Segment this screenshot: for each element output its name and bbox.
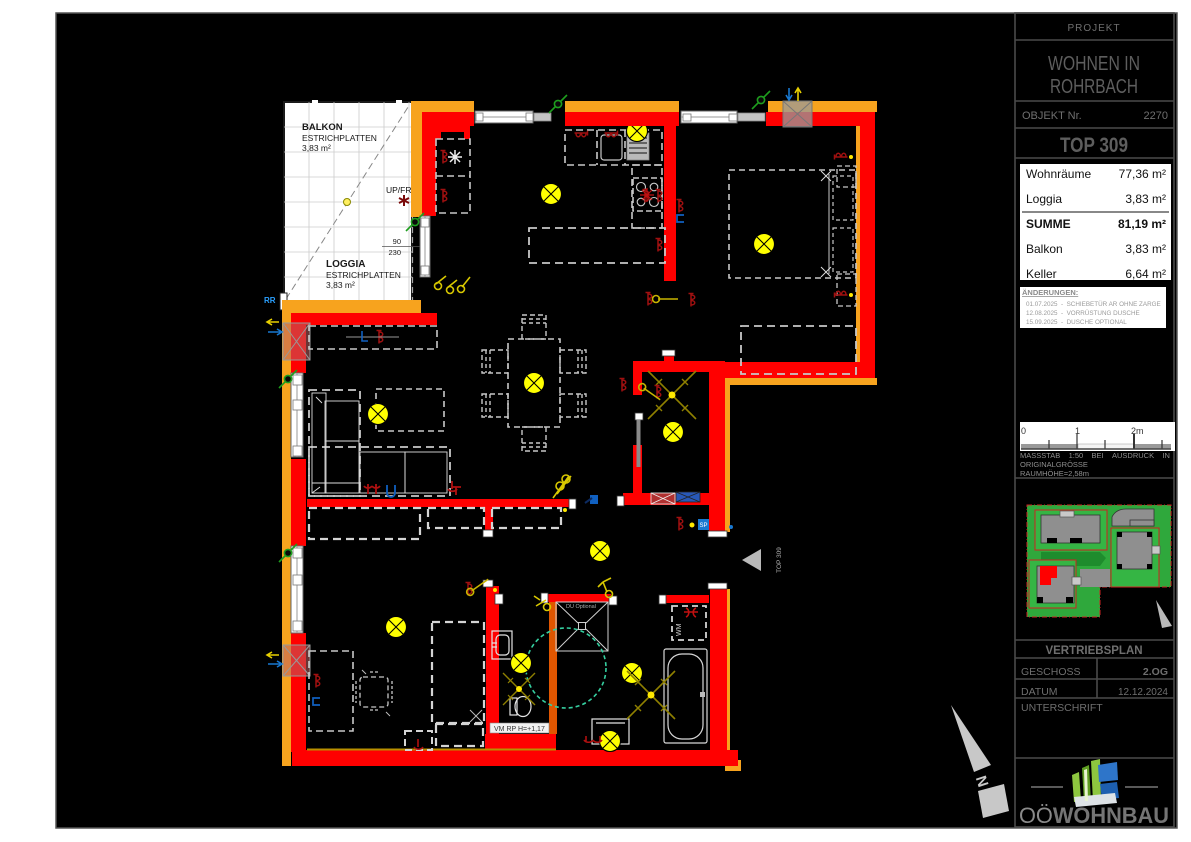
svg-text:12.08.2025 - VORRÜSTUNG DUSC: 12.08.2025 - VORRÜSTUNG DUSCHE: [1026, 309, 1140, 317]
svg-text:ORIGINALGRÖSSE: ORIGINALGRÖSSE: [1020, 460, 1088, 469]
svg-text:BALKON: BALKON: [302, 122, 343, 133]
svg-text:GESCHOSS: GESCHOSS: [1021, 666, 1081, 678]
svg-text:ROHRBACH: ROHRBACH: [1050, 76, 1138, 98]
svg-text:ÄNDERUNGEN:: ÄNDERUNGEN:: [1022, 288, 1078, 297]
svg-text:3,83 m²: 3,83 m²: [302, 143, 331, 153]
svg-text:WM: WM: [676, 623, 683, 636]
svg-text:RAUMHÖHE=2,58m: RAUMHÖHE=2,58m: [1020, 469, 1089, 478]
svg-text:SUMME: SUMME: [1026, 217, 1071, 231]
svg-text:UP/FR: UP/FR: [386, 185, 412, 195]
svg-text:3,83 m²: 3,83 m²: [1125, 192, 1166, 206]
svg-text:15.09.2025 - DUSCHE OPTIONAL: 15.09.2025 - DUSCHE OPTIONAL: [1026, 319, 1127, 326]
svg-text:Balkon: Balkon: [1026, 242, 1063, 256]
svg-text:ESTRICHPLATTEN: ESTRICHPLATTEN: [326, 270, 401, 280]
svg-text:DATUM: DATUM: [1021, 686, 1058, 698]
svg-text:6,64 m²: 6,64 m²: [1125, 267, 1166, 281]
svg-text:VM RP H=+1,17: VM RP H=+1,17: [494, 726, 545, 733]
svg-text:2.OG: 2.OG: [1143, 666, 1168, 678]
svg-text:TOP 309: TOP 309: [776, 547, 783, 573]
svg-text:12.12.2024: 12.12.2024: [1118, 687, 1168, 698]
svg-text:VERTRIEBSPLAN: VERTRIEBSPLAN: [1045, 645, 1142, 657]
svg-text:LOGGIA: LOGGIA: [326, 259, 365, 270]
svg-text:RR: RR: [264, 296, 276, 305]
svg-text:3,83 m²: 3,83 m²: [326, 280, 355, 290]
svg-text:ESTRICHPLATTEN: ESTRICHPLATTEN: [302, 133, 377, 143]
svg-text:Keller: Keller: [1026, 267, 1057, 281]
svg-text:OÖWOHNBAU: OÖWOHNBAU: [1019, 803, 1169, 828]
svg-text:OBJEKT Nr.: OBJEKT Nr.: [1022, 110, 1082, 122]
svg-text:230: 230: [388, 248, 401, 257]
svg-text:77,36 m²: 77,36 m²: [1119, 167, 1166, 181]
svg-text:0: 0: [1021, 426, 1026, 436]
svg-text:2m: 2m: [1131, 426, 1144, 436]
svg-text:MASSSTAB 1:50 BEI AUS: MASSSTAB 1:50 BEI AUSDRUCK IN: [1020, 451, 1170, 460]
svg-text:TOP 309: TOP 309: [1060, 134, 1128, 157]
svg-text:Wohnräume: Wohnräume: [1026, 167, 1091, 181]
svg-text:90: 90: [393, 237, 401, 246]
svg-text:WOHNEN IN: WOHNEN IN: [1048, 53, 1140, 75]
svg-text:81,19 m²: 81,19 m²: [1118, 217, 1166, 231]
svg-text:3,83 m²: 3,83 m²: [1125, 242, 1166, 256]
svg-text:UNTERSCHRIFT: UNTERSCHRIFT: [1021, 702, 1103, 714]
svg-text:2270: 2270: [1144, 110, 1168, 122]
svg-text:Loggia: Loggia: [1026, 192, 1062, 206]
svg-text:01.07.2025 - SCHIEBETÜR AR O: 01.07.2025 - SCHIEBETÜR AR OHNE ZARGE: [1026, 300, 1161, 308]
svg-text:SP: SP: [700, 523, 708, 529]
svg-text:PROJEKT: PROJEKT: [1067, 23, 1120, 34]
svg-text:DU Optional: DU Optional: [566, 604, 596, 610]
